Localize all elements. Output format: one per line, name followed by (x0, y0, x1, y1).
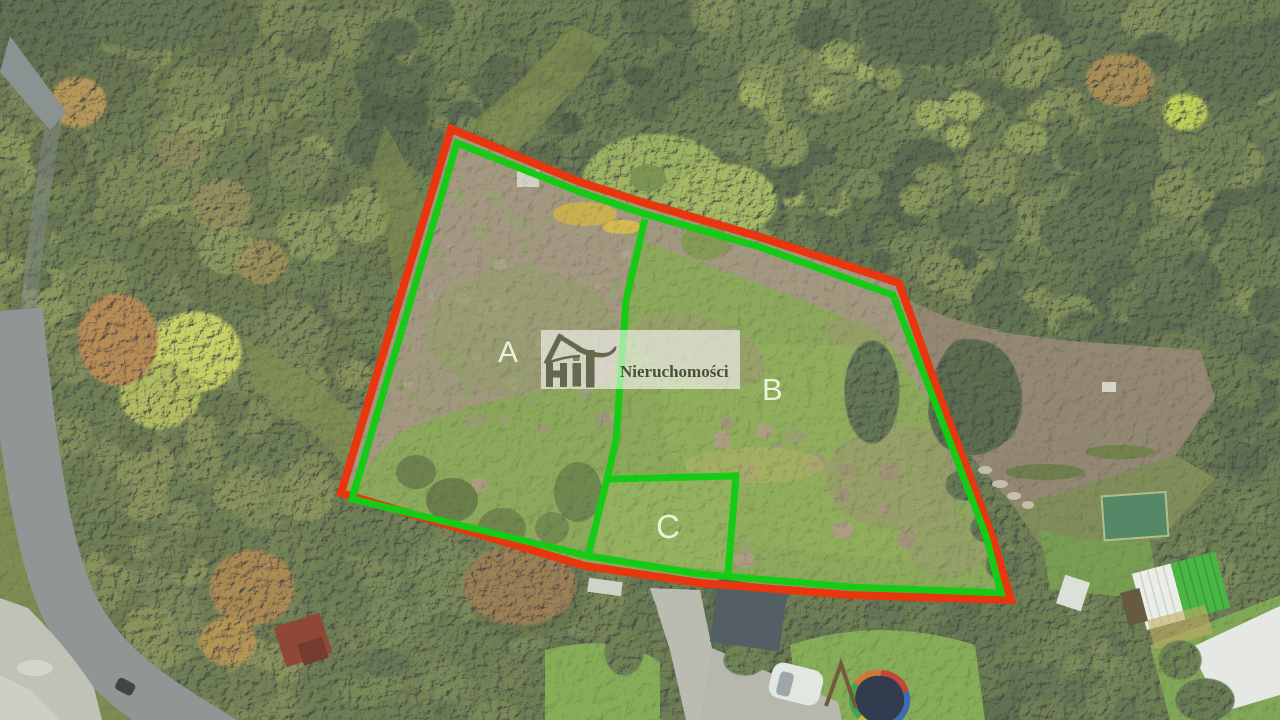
svg-text:C: C (656, 508, 680, 545)
svg-text:B: B (762, 372, 783, 407)
svg-text:Nieruchomości: Nieruchomości (620, 362, 729, 381)
svg-text:A: A (498, 336, 518, 369)
